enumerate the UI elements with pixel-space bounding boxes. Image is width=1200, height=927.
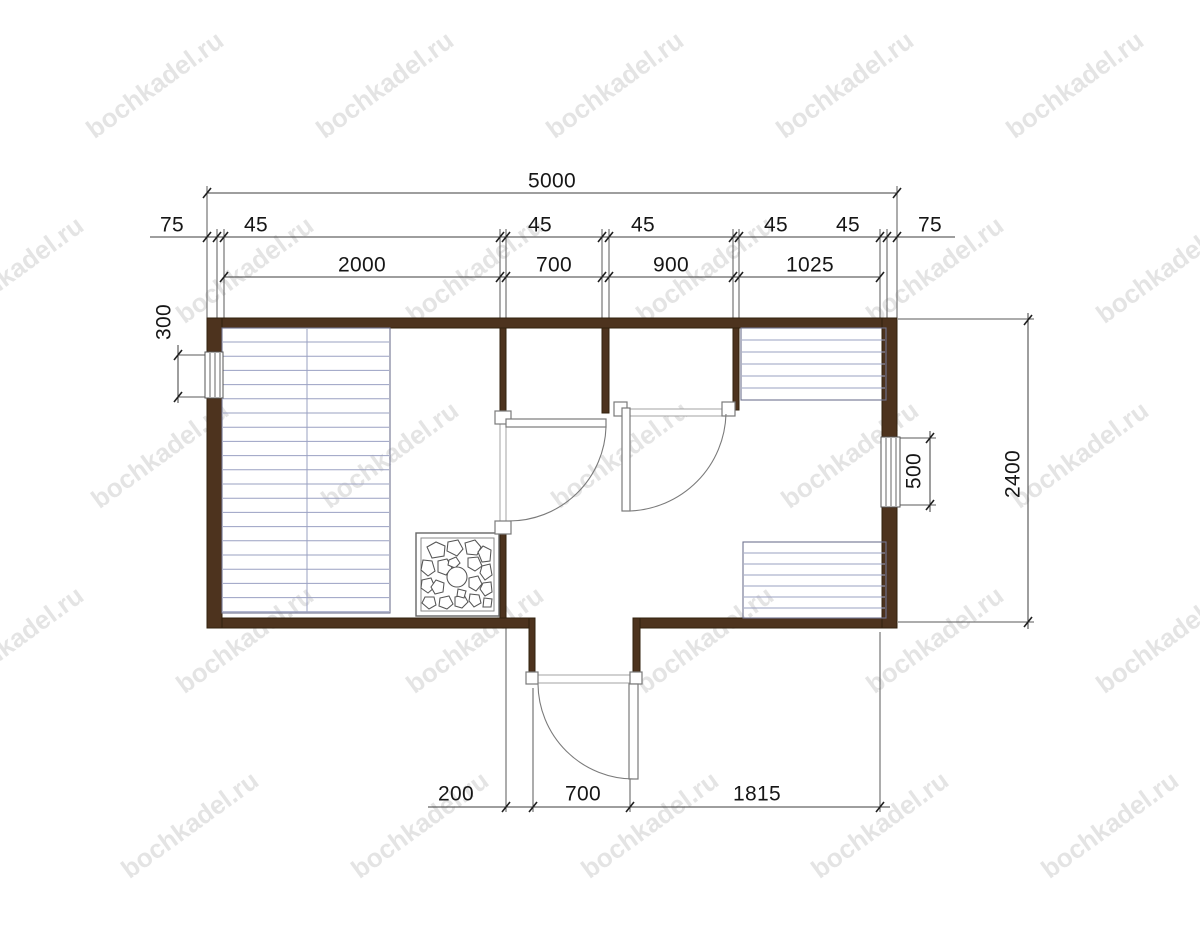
dim-room-900: 900: [653, 255, 689, 276]
dim-room-700: 700: [536, 255, 572, 276]
dim-bottom-door-700: 700: [565, 784, 601, 805]
dim-overall-depth: 2400: [1003, 450, 1024, 498]
dim-wall-left-75: 75: [160, 215, 184, 236]
dimension-labels: 5000 75 45 45 45 45 45 75 2000 700 900 1…: [0, 0, 1200, 927]
dim-right-window-500: 500: [904, 453, 925, 489]
dim-wall-45-3: 45: [631, 215, 655, 236]
dim-wall-45-4: 45: [764, 215, 788, 236]
floor-plan-page: bochkadel.rubochkadel.rubochkadel.ruboch…: [0, 0, 1200, 927]
dim-wall-45-2: 45: [528, 215, 552, 236]
dim-wall-45-5: 45: [836, 215, 860, 236]
dim-wall-45-1: 45: [244, 215, 268, 236]
dim-wall-right-75: 75: [918, 215, 942, 236]
dim-room-2000: 2000: [338, 255, 386, 276]
dim-left-window-300: 300: [154, 304, 175, 340]
dim-bottom-1815: 1815: [733, 784, 781, 805]
dim-bottom-200: 200: [438, 784, 474, 805]
dim-overall-width: 5000: [528, 171, 576, 192]
dim-room-1025: 1025: [786, 255, 834, 276]
